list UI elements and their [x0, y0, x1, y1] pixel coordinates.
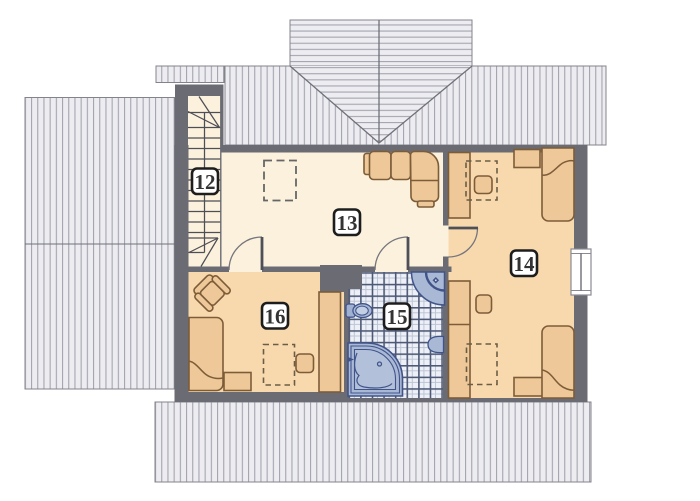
svg-text:16: 16 — [265, 305, 286, 329]
svg-text:13: 13 — [337, 211, 358, 235]
svg-text:12: 12 — [195, 170, 216, 194]
svg-text:14: 14 — [514, 252, 536, 276]
svg-text:15: 15 — [387, 305, 408, 329]
